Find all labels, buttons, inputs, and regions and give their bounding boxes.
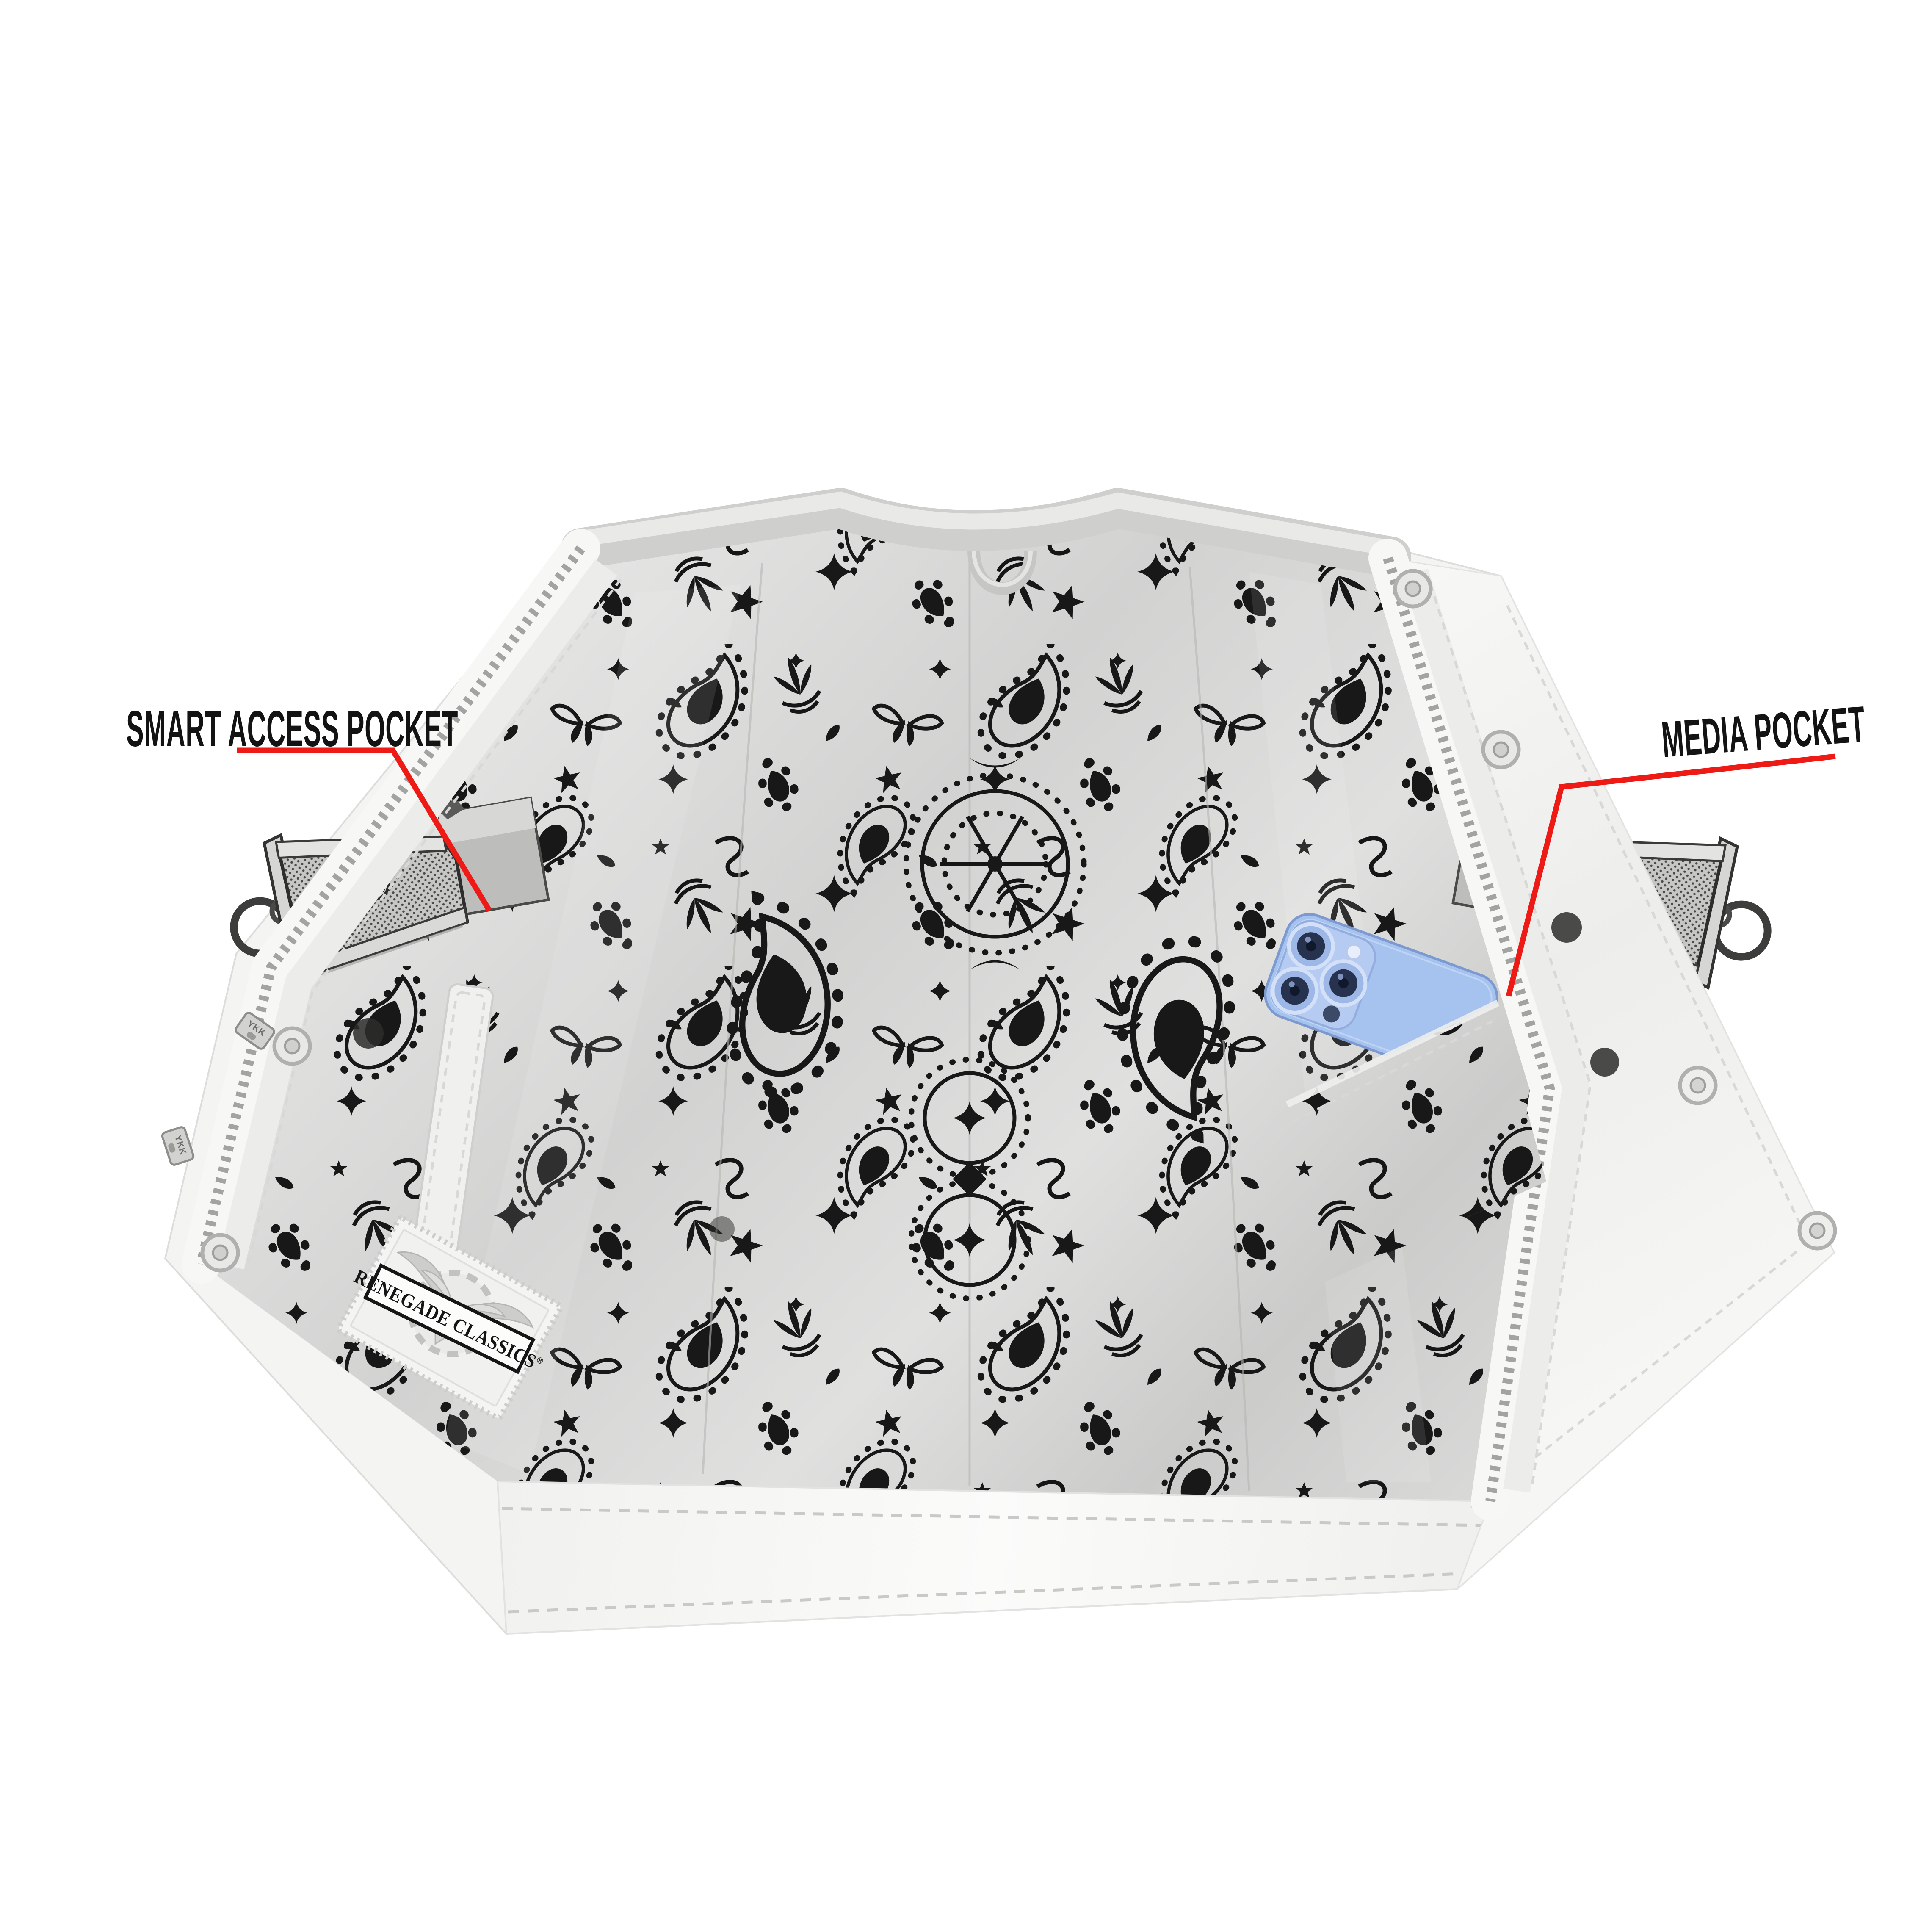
snap-socket bbox=[1551, 912, 1582, 943]
product-diagram-svg: YKK YKK RENEGADE CLA bbox=[0, 0, 1932, 1932]
snap-ring bbox=[202, 1235, 238, 1270]
snap-ring bbox=[1799, 1213, 1835, 1248]
snap-ring bbox=[1395, 571, 1431, 606]
snap-socket bbox=[709, 1216, 735, 1242]
snap-ring bbox=[1483, 732, 1519, 767]
snap-socket bbox=[353, 1018, 384, 1049]
snap-ring bbox=[274, 1028, 310, 1064]
annotation-smart-access-pocket: SMART ACCESS POCKET bbox=[126, 700, 458, 757]
snap-socket bbox=[1590, 1048, 1619, 1077]
snap-ring bbox=[1680, 1068, 1716, 1103]
